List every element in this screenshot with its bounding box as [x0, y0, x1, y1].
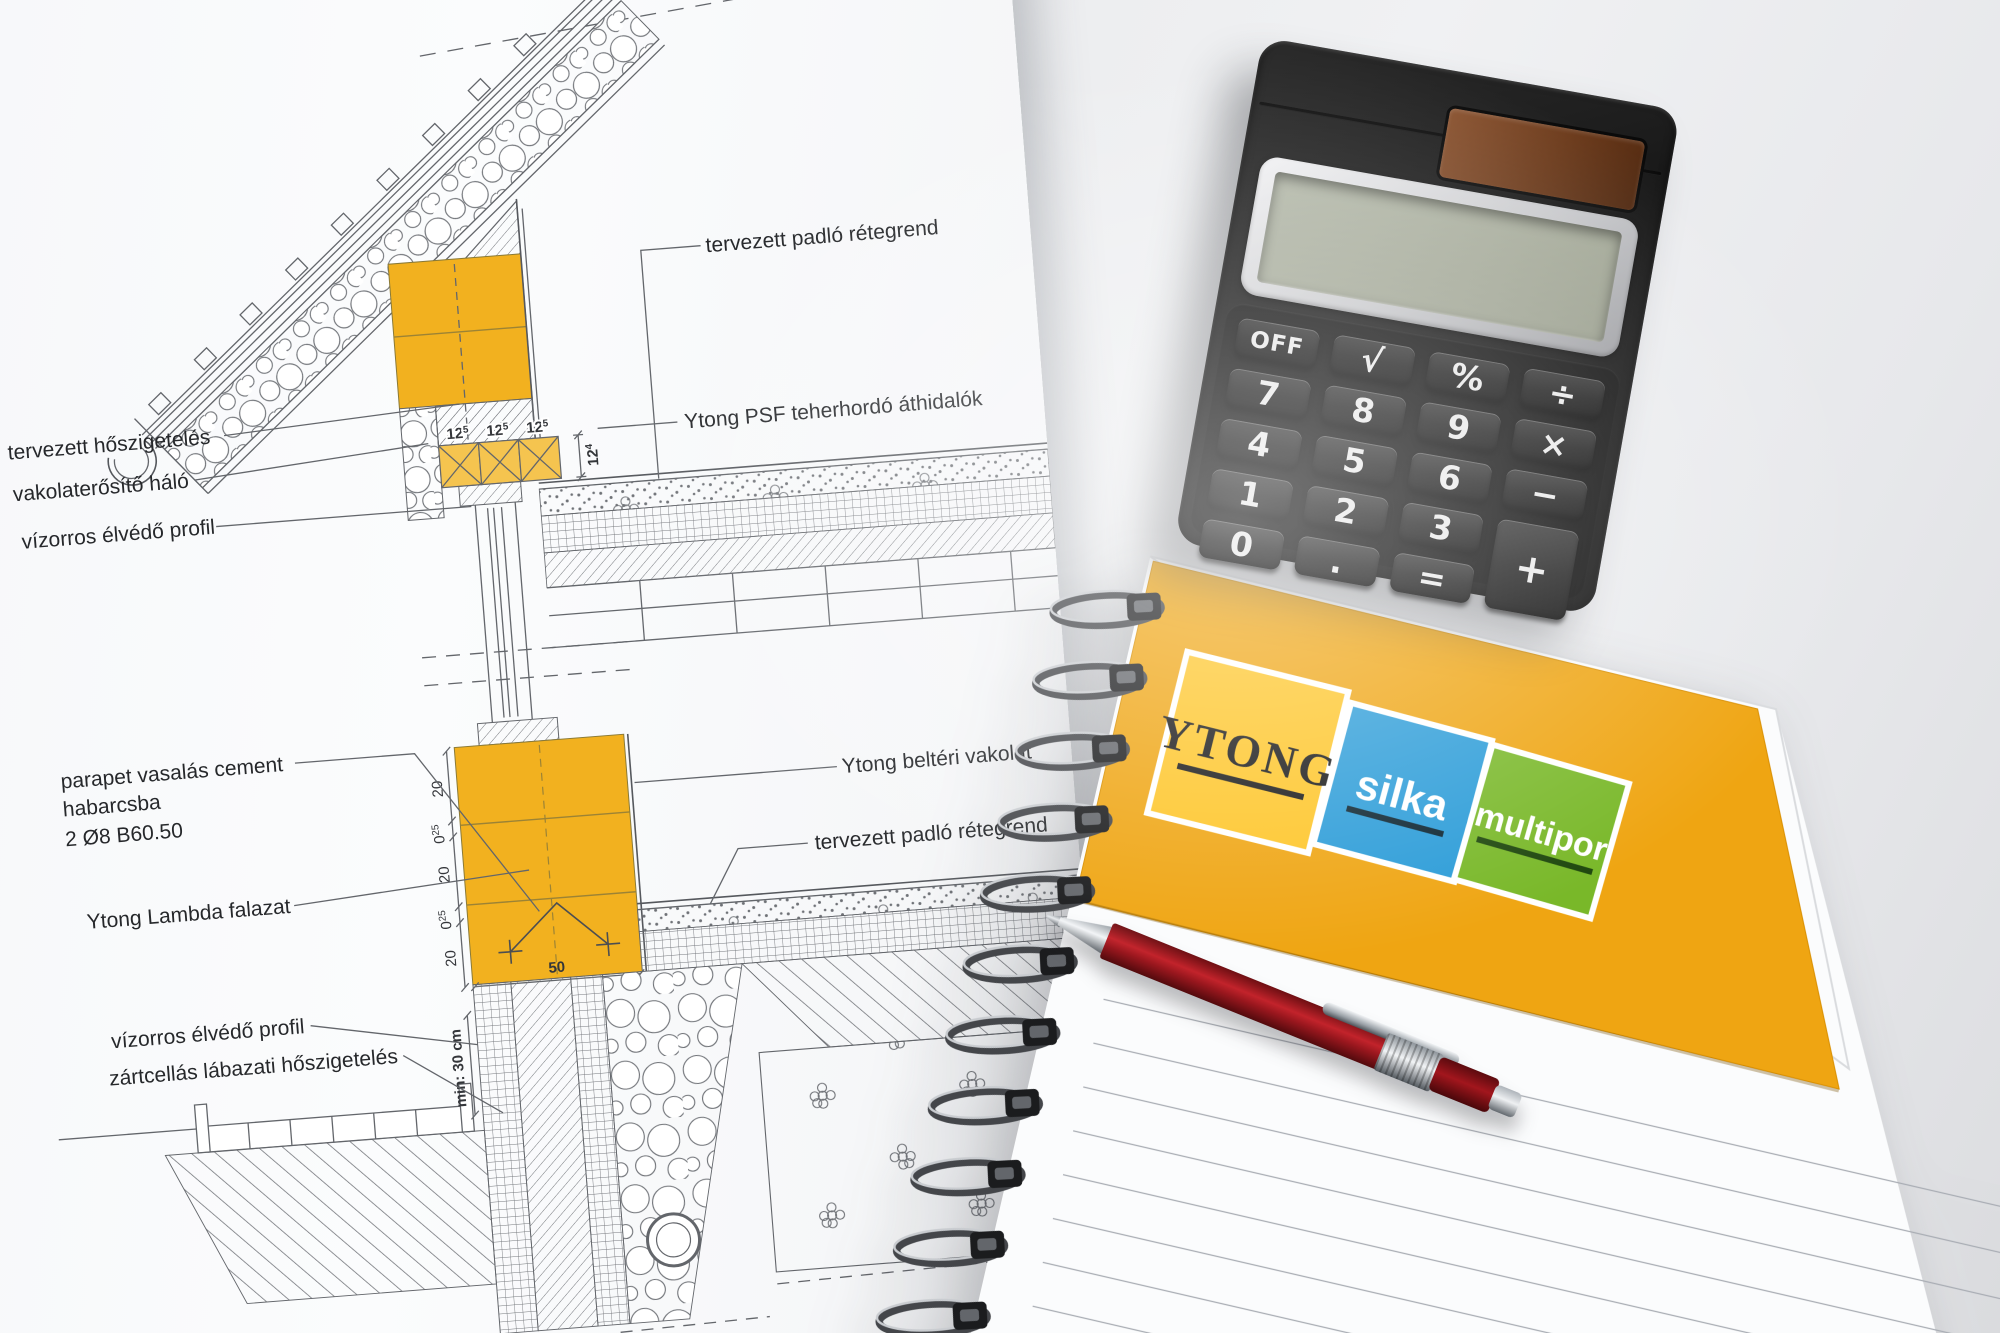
key-3: 3 — [1397, 502, 1484, 555]
key-minus: − — [1501, 468, 1588, 521]
label-floor-top: tervezett padló rétegrend — [705, 216, 940, 257]
svg-text:125: 125 — [526, 418, 550, 437]
ridge-dashed-line — [416, 0, 954, 56]
label-inner-plaster: Ytong beltéri vakolat — [841, 740, 1033, 778]
key-8: 8 — [1320, 384, 1407, 437]
key-multiply: × — [1510, 418, 1597, 471]
label-parapet-2: habarcsba — [62, 791, 162, 822]
label-drip-bottom: vízorros élvédő profil — [110, 1015, 305, 1053]
label-drip-top: vízorros élvédő profil — [21, 516, 216, 554]
key-2: 2 — [1302, 485, 1389, 538]
label-lambda-wall: Ytong Lambda falazat — [86, 895, 292, 934]
dim-min30: min: 30 cm — [447, 1028, 470, 1107]
svg-text:20: 20 — [436, 866, 454, 884]
lintel-row — [435, 395, 586, 492]
label-parapet-3: 2 Ø8 B60.50 — [64, 819, 183, 851]
drawing-sheet: 50 20 025 20 025 20 — [0, 0, 1121, 1333]
roof-assembly — [130, 0, 664, 498]
label-parapet-1: parapet vasalás cement — [60, 753, 284, 793]
technical-drawing: 50 20 025 20 025 20 — [0, 0, 1121, 1333]
parapet-wall: 50 — [452, 734, 647, 991]
svg-text:124: 124 — [584, 443, 603, 467]
dim-parapet-width: 50 — [548, 959, 566, 977]
svg-text:025: 025 — [437, 909, 456, 930]
key-5: 5 — [1311, 435, 1398, 488]
svg-text:20: 20 — [442, 949, 460, 967]
photo-scene: 50 20 025 20 025 20 — [0, 0, 2000, 1333]
label-plaster-mesh: vakolaterősítő háló — [12, 470, 190, 507]
key-6: 6 — [1406, 451, 1493, 504]
label-base-insulation: zártcellás lábazati hőszigetelés — [108, 1045, 398, 1091]
key-1: 1 — [1207, 468, 1294, 521]
key-7: 7 — [1224, 367, 1311, 420]
key-equals: = — [1388, 552, 1475, 605]
svg-text:025: 025 — [430, 823, 449, 844]
floor-slab-upper — [539, 443, 1060, 648]
key-9: 9 — [1415, 401, 1502, 454]
calculator: OFF √ % ÷ 7 8 9 × 4 5 6 − 1 2 3 + 0 . = — [1174, 37, 1680, 615]
key-0: 0 — [1198, 518, 1285, 571]
key-plus: + — [1484, 518, 1580, 621]
key-decimal: . — [1293, 535, 1380, 588]
label-lintel: Ytong PSF teherhordó áthidalók — [683, 387, 983, 433]
key-4: 4 — [1215, 418, 1302, 471]
